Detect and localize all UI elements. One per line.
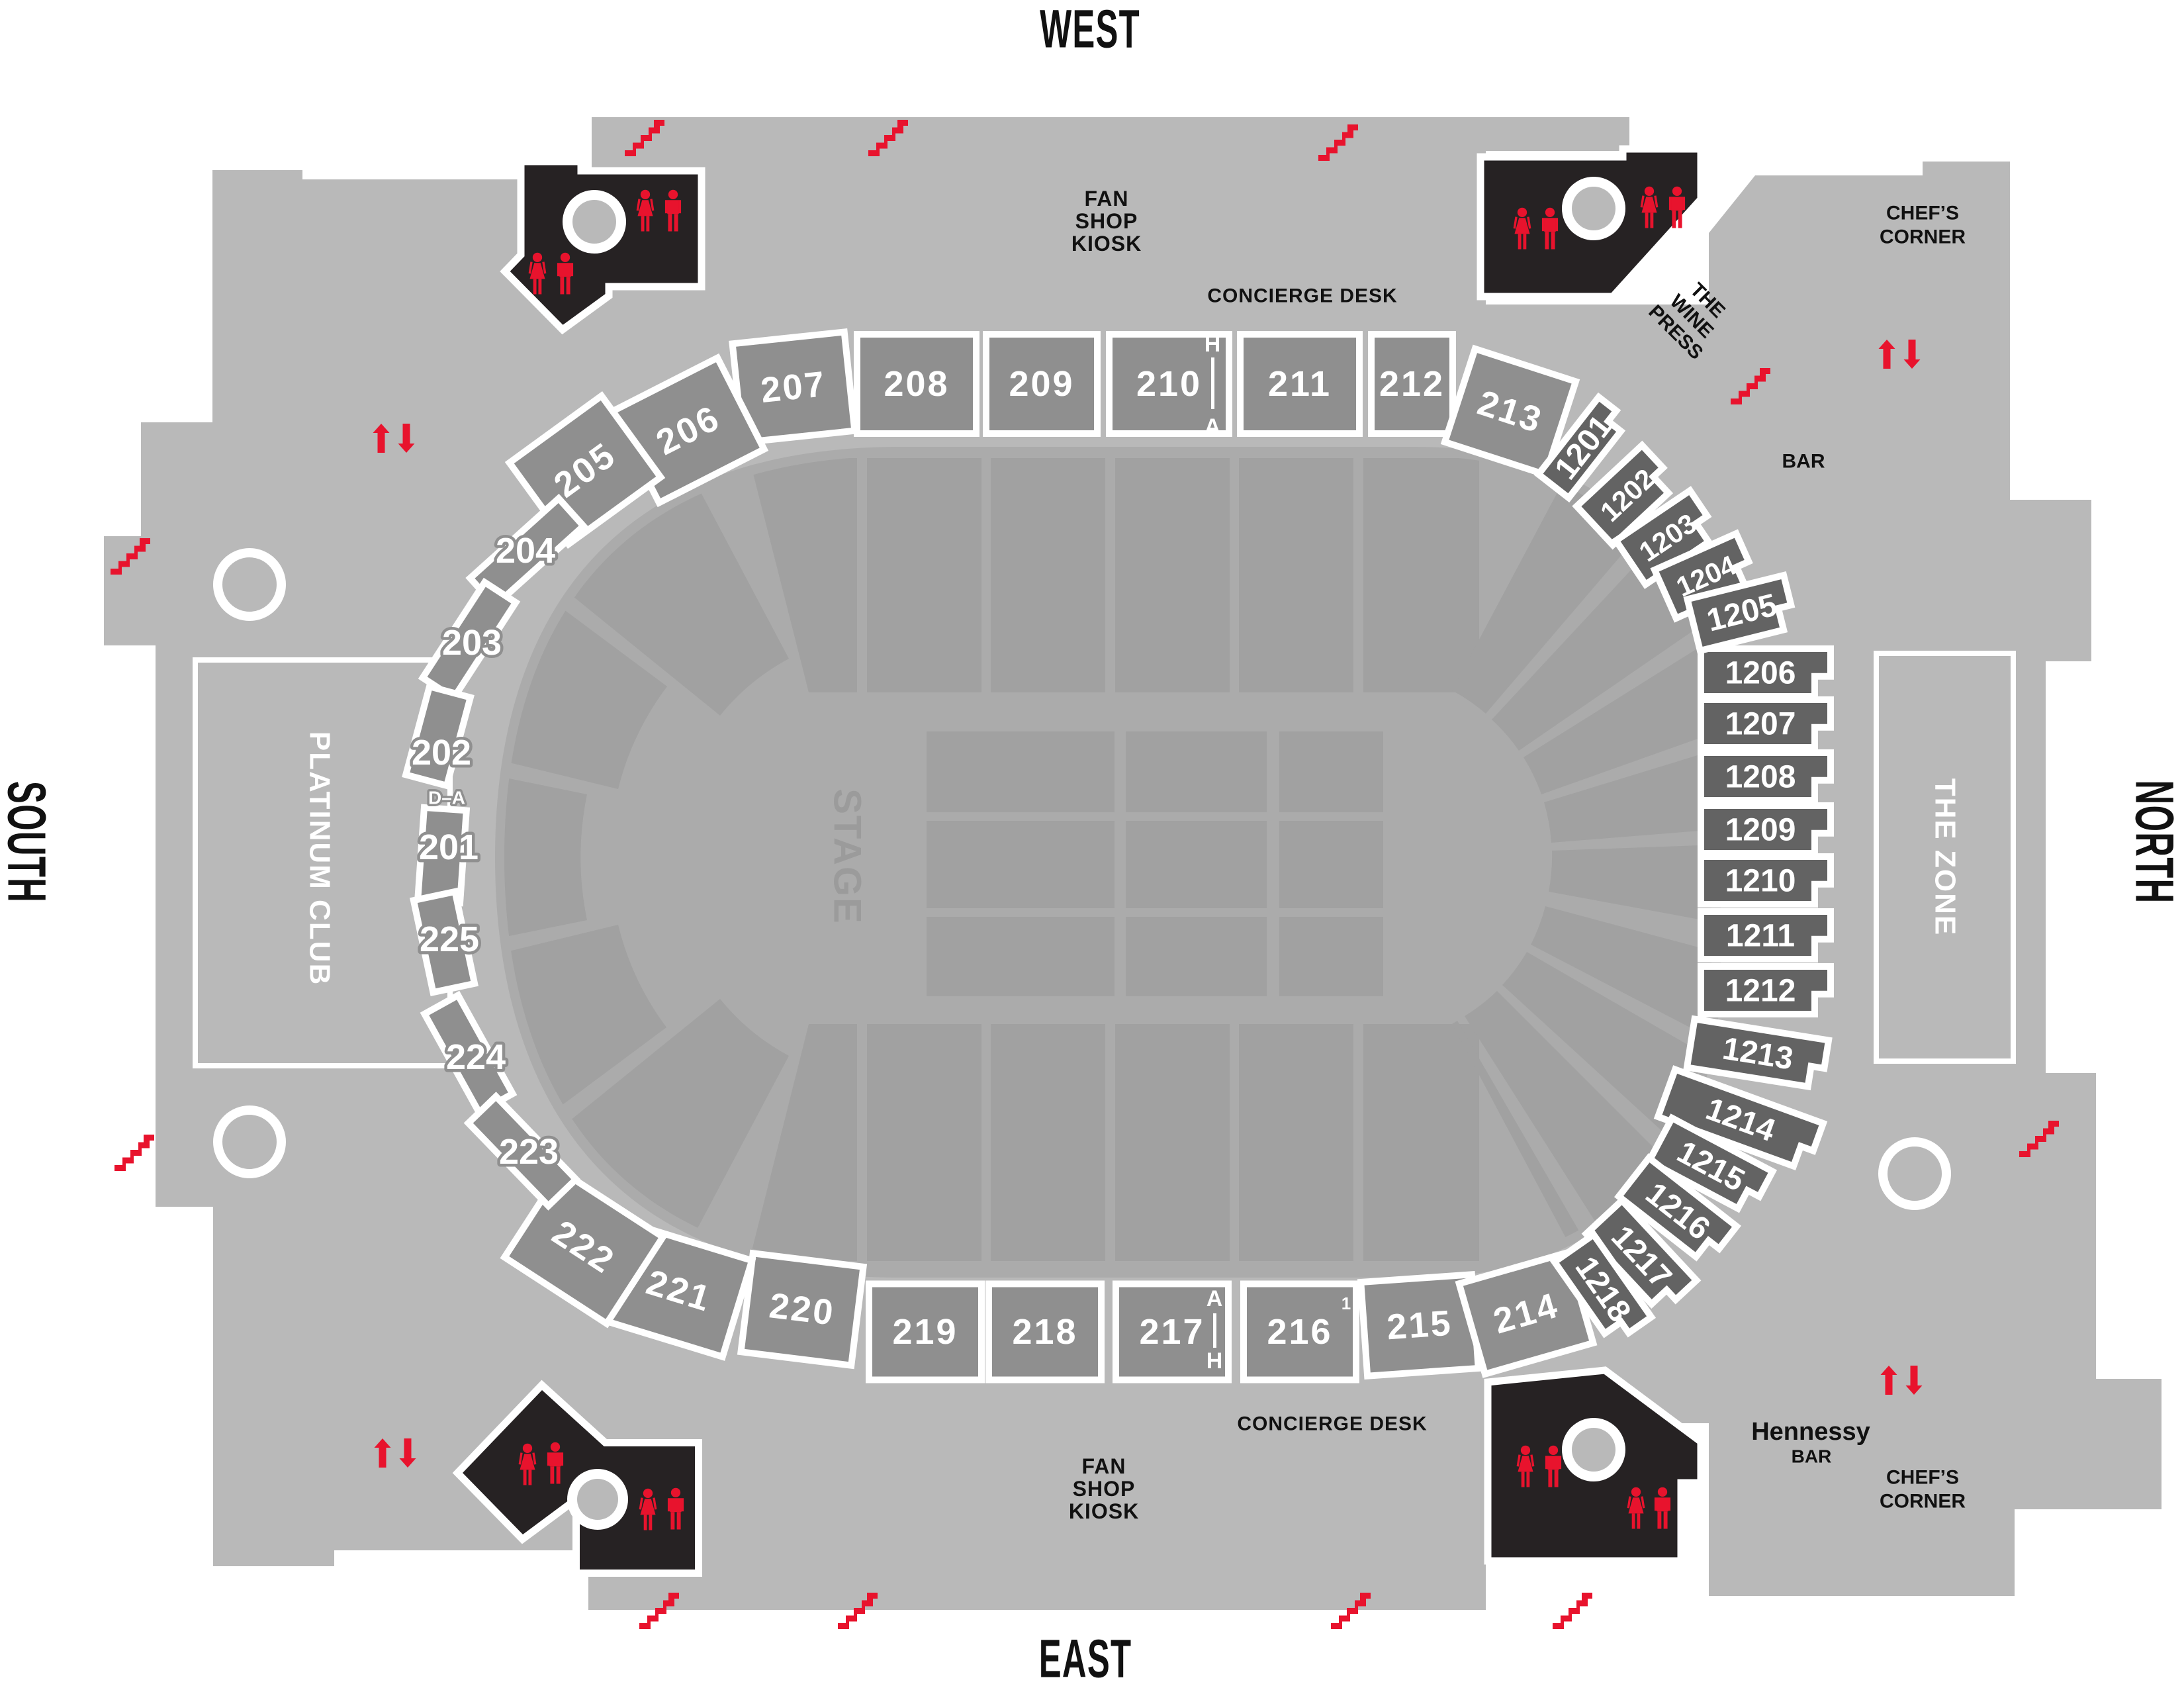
svg-text:STAGE: STAGE xyxy=(826,788,869,925)
svg-text:203: 203 xyxy=(442,623,502,663)
svg-text:219: 219 xyxy=(892,1312,958,1352)
svg-text:SHOP: SHOP xyxy=(1075,209,1138,233)
svg-text:SHOP: SHOP xyxy=(1073,1477,1136,1501)
svg-text:SOUTH: SOUTH xyxy=(0,781,57,903)
svg-text:218: 218 xyxy=(1012,1312,1077,1352)
svg-text:1207: 1207 xyxy=(1725,707,1796,742)
svg-text:KIOSK: KIOSK xyxy=(1071,232,1142,256)
svg-text:215: 215 xyxy=(1385,1303,1453,1348)
svg-text:CONCIERGE DESK: CONCIERGE DESK xyxy=(1207,285,1397,307)
svg-text:CHEF’S: CHEF’S xyxy=(1886,1467,1959,1489)
svg-text:201: 201 xyxy=(419,827,478,867)
svg-text:1: 1 xyxy=(1342,1293,1351,1313)
svg-text:224: 224 xyxy=(446,1037,506,1077)
svg-text:1209: 1209 xyxy=(1725,813,1796,848)
svg-text:1208: 1208 xyxy=(1725,760,1796,795)
svg-text:216: 216 xyxy=(1267,1312,1332,1352)
svg-text:204: 204 xyxy=(496,531,555,571)
svg-text:BAR: BAR xyxy=(1792,1446,1832,1467)
svg-text:THE ZONE: THE ZONE xyxy=(1929,778,1962,936)
svg-text:NORTH: NORTH xyxy=(2124,780,2184,904)
svg-text:217: 217 xyxy=(1139,1312,1205,1352)
svg-text:BAR: BAR xyxy=(1782,451,1825,473)
svg-text:208: 208 xyxy=(884,364,949,404)
svg-text:A: A xyxy=(1206,1286,1223,1311)
svg-text:PLATINUM CLUB: PLATINUM CLUB xyxy=(304,731,336,986)
svg-text:1206: 1206 xyxy=(1725,656,1796,691)
svg-text:1210: 1210 xyxy=(1725,864,1796,899)
svg-text:1211: 1211 xyxy=(1726,919,1795,954)
svg-text:A: A xyxy=(1205,414,1221,440)
svg-text:223: 223 xyxy=(499,1132,559,1172)
svg-text:H: H xyxy=(1205,332,1221,357)
svg-text:220: 220 xyxy=(767,1286,837,1333)
svg-text:FAN: FAN xyxy=(1082,1454,1126,1478)
svg-text:CORNER: CORNER xyxy=(1880,1491,1966,1513)
svg-text:225: 225 xyxy=(420,919,479,959)
svg-text:212: 212 xyxy=(1379,364,1445,404)
svg-text:H: H xyxy=(1206,1348,1223,1374)
svg-text:EAST: EAST xyxy=(1039,1628,1132,1688)
svg-text:210: 210 xyxy=(1136,364,1202,404)
svg-text:FAN: FAN xyxy=(1085,187,1129,211)
svg-text:D–A: D–A xyxy=(428,788,465,808)
svg-text:WEST: WEST xyxy=(1040,0,1140,60)
svg-text:CORNER: CORNER xyxy=(1880,226,1966,248)
svg-text:207: 207 xyxy=(759,364,829,410)
svg-text:CONCIERGE DESK: CONCIERGE DESK xyxy=(1237,1413,1427,1435)
svg-text:209: 209 xyxy=(1009,364,1074,404)
svg-text:211: 211 xyxy=(1268,364,1332,404)
svg-text:CHEF’S: CHEF’S xyxy=(1886,203,1959,224)
svg-text:202: 202 xyxy=(412,733,471,773)
svg-text:1212: 1212 xyxy=(1725,974,1796,1009)
svg-text:Hennessy: Hennessy xyxy=(1751,1418,1870,1446)
svg-text:KIOSK: KIOSK xyxy=(1069,1499,1139,1523)
